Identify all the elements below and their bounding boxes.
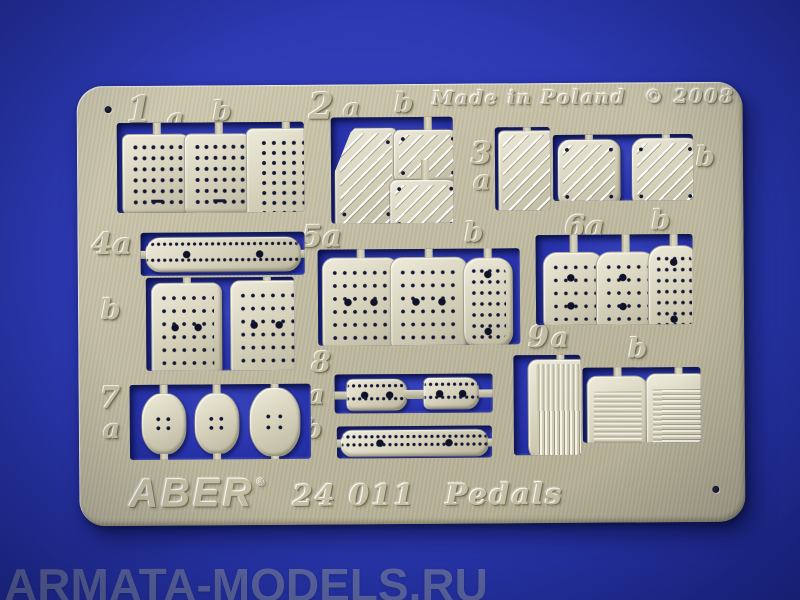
label-group7-a: a [103, 416, 121, 443]
fret-corner-hole-bottom-right [712, 486, 719, 493]
label-group3-b: b [696, 144, 715, 171]
label-group7-number: 7 [100, 384, 121, 414]
part-4a [145, 236, 302, 273]
label-group6-b: b [651, 207, 670, 234]
part-7a-3 [249, 387, 301, 457]
fret-window-group6 [536, 234, 694, 325]
label-group9-number: 9 [528, 323, 549, 353]
fret-window-group4b [146, 277, 295, 371]
label-group4-a: 4a [91, 230, 132, 260]
label-group2-b: b [395, 90, 414, 117]
label-group8-number: 8 [311, 349, 331, 377]
part-8a-2 [423, 377, 480, 410]
part-4b-2 [230, 280, 295, 371]
part-8a-1 [346, 378, 408, 411]
part-1a-1 [122, 134, 193, 214]
part-7a-2 [194, 392, 240, 454]
part-5a-1 [322, 257, 400, 346]
label-group9-b: b [628, 335, 647, 362]
registered-trademark-mark: ® [257, 477, 265, 489]
part-3b-1 [557, 139, 621, 201]
part-7a-1 [141, 393, 187, 455]
fret-window-group1 [117, 122, 305, 213]
label-group3-a: a [473, 167, 491, 194]
label-group9-a: a [551, 325, 569, 352]
part-9b-2 [645, 373, 700, 443]
part-3b-2 [631, 137, 693, 201]
fret-window-group3a [495, 127, 551, 210]
fret-corner-hole-top-left [105, 106, 112, 113]
part-2b-2 [389, 179, 453, 224]
fret-window-group7 [130, 384, 312, 460]
made-in-label: Made in Poland [432, 86, 626, 109]
fret-window-group8a [334, 373, 492, 413]
part-9b-1 [587, 375, 650, 442]
fret-window-group2 [331, 117, 454, 224]
etched-fret-sheet: Made in Poland© 2008 1 a b 2 a b 3 a b 4… [76, 82, 745, 527]
part-1a-2 [184, 133, 255, 213]
fret-window-group8b [337, 425, 492, 458]
photo-background: { "sheet": { "made_in": "Made in Poland"… [0, 0, 800, 600]
label-group5-b: b [464, 219, 483, 246]
brand-row: ABER ® 24 011 Pedals [129, 469, 564, 517]
part-8b [340, 428, 489, 457]
product-code-text: 24 011 [293, 478, 416, 513]
label-group4-b: b [101, 296, 121, 324]
part-3a [498, 130, 551, 210]
part-6b [648, 245, 694, 325]
made-in-text: Made in Poland© 2008 [432, 86, 735, 110]
part-1b [246, 128, 305, 213]
fret-window-group9b [582, 367, 701, 443]
fret-window-group4a [140, 232, 304, 276]
fret-window-group3b [553, 134, 693, 201]
watermark-text: ARMATA-MODELS.RU [4, 558, 488, 600]
label-group5-a: 5a [301, 222, 342, 252]
part-5b [463, 257, 514, 345]
fret-window-group9a [513, 355, 581, 455]
part-5a-2 [390, 257, 469, 346]
part-9a [527, 359, 581, 456]
brand-logo-text: ABER [129, 471, 255, 517]
fret-window-group5 [318, 248, 521, 345]
copyright-year: © 2008 [645, 86, 736, 109]
part-4b-1 [151, 282, 223, 371]
product-name-text: Pedals [446, 477, 564, 512]
